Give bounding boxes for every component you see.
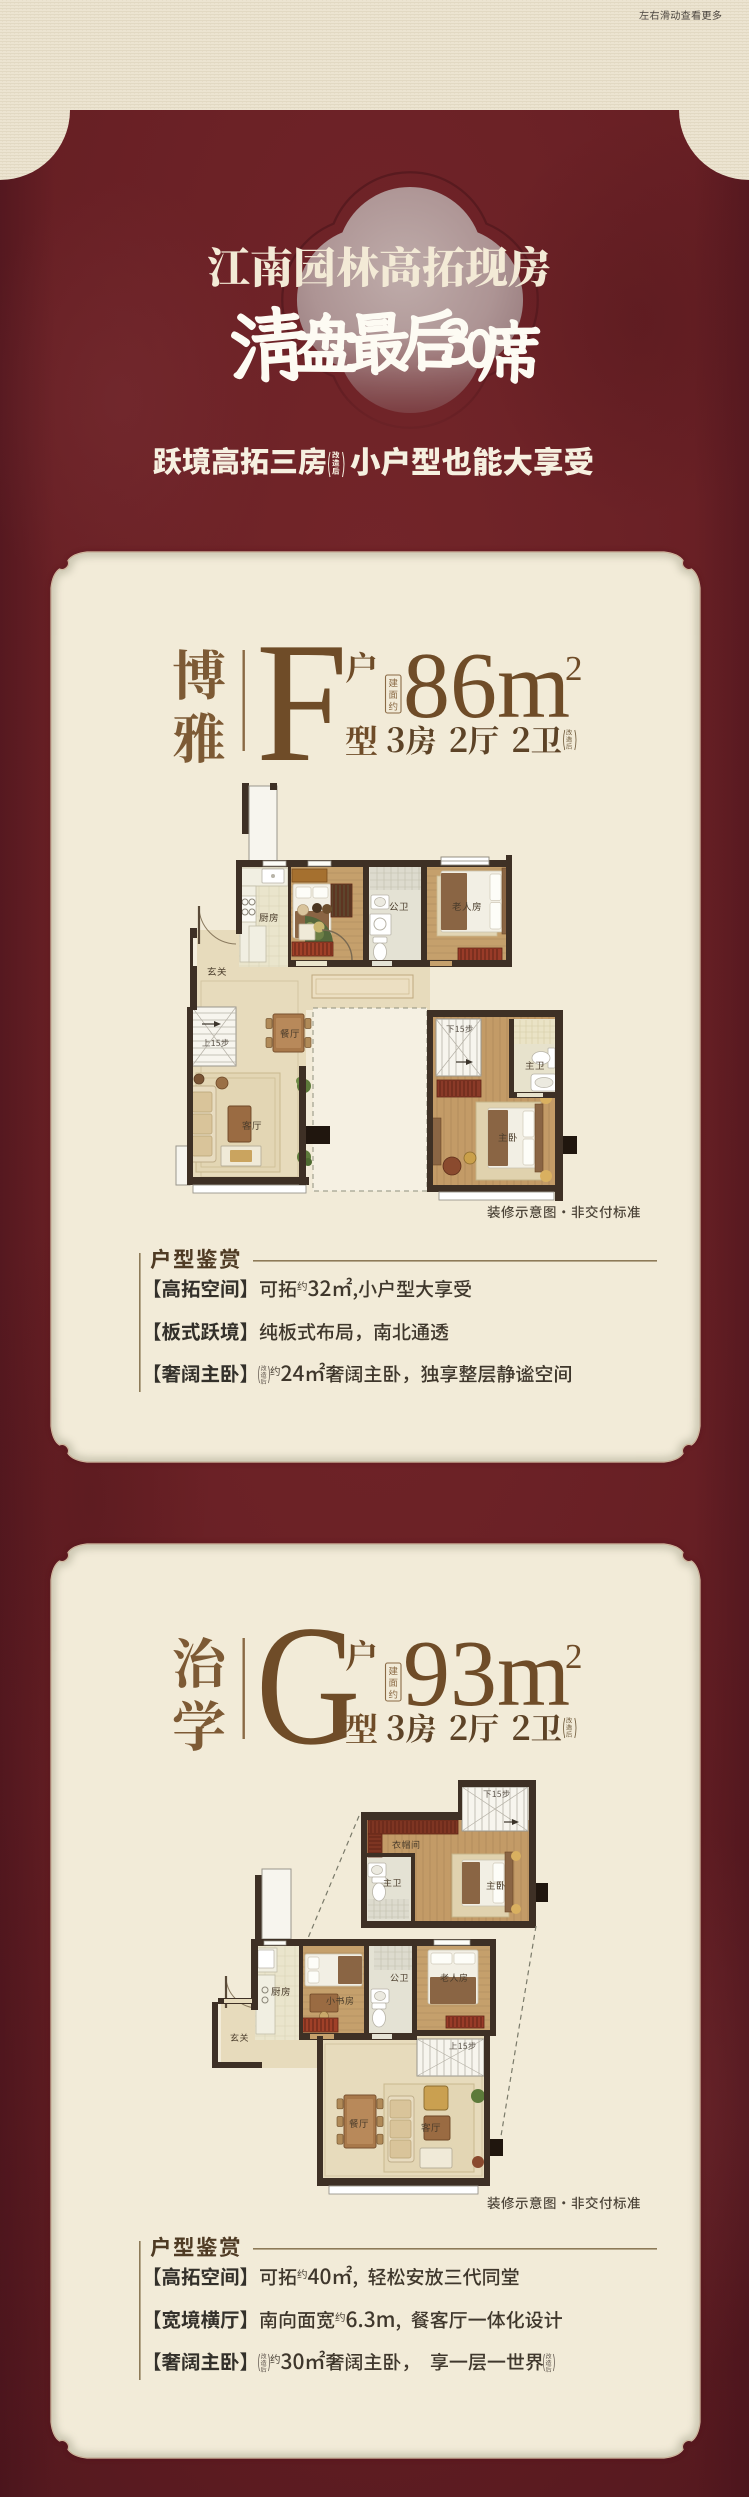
svg-text:G: G (256, 1590, 360, 1781)
svg-text:2: 2 (565, 1637, 583, 1676)
svg-text:93m: 93m (403, 1622, 570, 1726)
svg-text:2: 2 (565, 649, 583, 688)
svg-text:F: F (256, 608, 348, 798)
svg-text:86m: 86m (403, 634, 570, 738)
